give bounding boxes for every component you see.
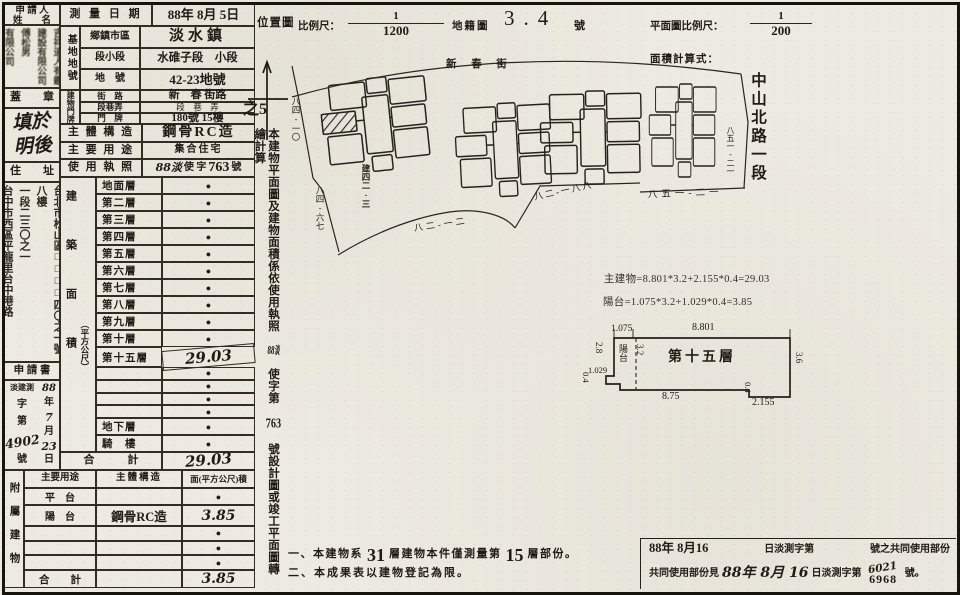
app-number-handwritten: 4902 — [4, 432, 40, 450]
annex-structure — [96, 526, 182, 541]
annex-area-balcony: 3.85 — [182, 505, 255, 526]
app-date-month: 7 — [45, 412, 53, 424]
plan-scale-denominator: 200 — [771, 24, 791, 39]
floor-area-value: ● — [162, 245, 255, 262]
app-char: 字 — [17, 400, 27, 411]
floor-area-value: ● — [162, 296, 255, 313]
dim-36: 3.6 — [792, 352, 803, 374]
cadastral-map-label: 地籍圖 — [452, 21, 498, 34]
floor-area-value: ● — [162, 194, 255, 211]
application-number-column: 淡建測 字 第 4902 號 — [5, 381, 39, 469]
usage-label: 主 要 用 途 — [60, 142, 142, 159]
building-cluster-3 — [540, 90, 642, 185]
app-date-year: 88 — [42, 384, 56, 395]
area-formula-label: 面積計算式： — [650, 54, 744, 67]
township-value: 淡水鎮 — [140, 26, 255, 48]
cu1-suffix: 號之共同使用部份 — [870, 545, 950, 556]
dim-1075: 1.075 — [611, 325, 643, 335]
address-handwritten: 台北市松山區□□□□四〇之一號八樓 一段二三〇之一 台中市西區平龍里台中港路 — [4, 185, 60, 359]
floor-area-value: ● — [162, 393, 255, 406]
door-number-value: 180號 15樓 — [140, 113, 255, 124]
parcel-label-851-21-right: 八五一-二一 — [722, 126, 734, 180]
annex-area: ● — [182, 555, 255, 570]
note1-measured-floor: 15 — [506, 546, 524, 565]
note1-suffix: 層部份。 — [528, 549, 578, 561]
app-char: 號 — [17, 455, 27, 466]
floor-area-value: ● — [162, 228, 255, 245]
address-label: 住 址 — [4, 162, 60, 182]
floor-label — [96, 393, 162, 406]
floor-label: 第六層 — [96, 262, 162, 279]
annex-side-cell: 附屬建物 — [4, 470, 24, 588]
floor-label: 第八層 — [96, 296, 162, 313]
parcel-boundaries — [292, 61, 748, 255]
floor-label: 第五層 — [96, 245, 162, 262]
cu2-suffix: 號。 — [905, 569, 925, 580]
annex-total-label: 合 計 — [24, 570, 96, 588]
parcel-label-jian-42-3: 建四二-三 — [357, 164, 370, 224]
annex-total-structure — [96, 570, 182, 588]
floor-area-value: ● — [162, 313, 255, 330]
strip-text-mid: 使字第 — [267, 368, 279, 404]
structure-label: 主 體 構 造 — [60, 124, 142, 142]
dim-04-right: 0.4 — [742, 382, 752, 399]
township-label: 鄉鎮市區 — [80, 26, 140, 48]
building-cluster-4 — [649, 84, 716, 177]
scale-label: 比例尺： — [298, 21, 348, 34]
company-stamp-text: 吉祥道人有鑑 建設有限公司傅松男 有限公司 — [4, 28, 60, 86]
street-name-xinchun: 新 春 街 — [446, 59, 532, 73]
app-date-unit: 日 — [44, 455, 54, 466]
annex-structure — [96, 555, 182, 570]
dim-875: 8.75 — [662, 392, 694, 403]
lot-number-value: 42-23地號 — [140, 69, 255, 90]
cu2-doc-label: 日淡測字第 — [811, 569, 861, 580]
handwritten-note: 填於 明後 — [11, 110, 52, 160]
parcel-label-84-67: 八四-六七 — [311, 186, 324, 244]
main-building-formula: 主建物=8.801*3.2+2.155*0.4=29.03 — [604, 274, 856, 286]
strip-license-number: 763 — [266, 417, 281, 431]
dim-04-left: 0.4 — [580, 372, 590, 390]
street-name-zhongshan: 中山北路一段 — [735, 72, 765, 192]
floor-label: 第七層 — [96, 279, 162, 296]
app-date-unit: 年 — [44, 398, 54, 409]
certificate-note-vertical: 本建物平面圖及建物面積係依使用執照 88淡 使字第 763 號設計圖或竣工平面圖… — [257, 128, 280, 578]
building-area-side-label: 建築面積 — [64, 190, 76, 400]
building-area-table: 地面層● 第二層● 第三層● 第四層● 第五層● 第六層● 第七層● 第八層● … — [96, 177, 255, 452]
cu1-date: 88年 8月16 — [649, 542, 708, 555]
license-number: 763 — [208, 161, 229, 176]
floor-area-value: ● — [162, 279, 255, 296]
annex-use — [24, 541, 96, 556]
address-cell: 台北市松山區□□□□四〇之一號八樓 一段二三〇之一 台中市西區平龍里台中港路 — [4, 182, 60, 362]
annex-use-balcony: 陽 台 — [24, 505, 96, 526]
handwritten-note-cell: 填於 明後 — [4, 108, 60, 162]
applicant-stamp-cell: 吉祥道人有鑑 建設有限公司傅松男 有限公司 — [4, 25, 60, 88]
annex-structure — [96, 488, 182, 505]
annex-use — [24, 555, 96, 570]
application-number-cell: 淡建測 字 第 4902 號 88 年 7 月 23 日 — [4, 380, 60, 470]
building-area-unit-label: （平方公尺） — [80, 320, 89, 448]
building-cluster-2 — [454, 101, 554, 199]
application-date-column: 88 年 7 月 23 日 — [39, 381, 59, 469]
usage-value: 集合住宅 — [142, 142, 255, 159]
app-prefix: 淡建測 — [10, 384, 34, 392]
survey-result-form-scan: 申 請 人 姓 名 吉祥道人有鑑 建設有限公司傅松男 有限公司 蓋 章 填於 明… — [0, 0, 960, 595]
annex-side-label: 附屬建物 — [8, 482, 19, 576]
annex-use — [24, 526, 96, 541]
app-char: 第 — [17, 417, 27, 428]
area-total-label: 合 計 — [60, 452, 162, 470]
lot-number-label: 地 號 — [80, 69, 140, 90]
application-doc-label: 申 請 書 — [4, 362, 60, 380]
building-cluster-1 — [318, 73, 433, 177]
floor-label-15f: 第十五層 — [96, 347, 162, 367]
floor-label — [96, 380, 162, 393]
annex-area: ● — [182, 526, 255, 541]
cu1-doc-label: 日淡測字第 — [764, 545, 814, 556]
area-total-number: 29.03 — [184, 451, 232, 471]
note1-total-floors: 31 — [367, 546, 385, 565]
strip-license-year-hand: 88淡 — [267, 345, 280, 356]
annex-structure-balcony: 鋼骨RC造 — [96, 505, 182, 526]
parcel-label-84-10: 八四-一〇 — [287, 97, 300, 153]
building-area-side-cell: 建築面積 （平方公尺） — [60, 177, 96, 452]
app-date-day: 23 — [41, 441, 56, 453]
floor-label — [96, 405, 162, 418]
survey-date-label: 測 量 日 期 — [60, 4, 152, 26]
door-number-overflow: 之5 — [243, 102, 277, 124]
note-line-1: 一、本建物系 31 層建物本件僅測量第 15 層部份。 — [288, 545, 658, 565]
parcel-label-82-12: 八二-一二 — [413, 216, 472, 236]
floor-area-value: ● — [162, 405, 255, 418]
door-number-label: 門 牌 — [80, 113, 140, 124]
annex-header-usage: 主要用途 — [24, 470, 96, 488]
section-value: 水碓子段 小段 — [140, 48, 255, 69]
cu2-pre: 共同使用部份見 — [649, 569, 719, 580]
room-label-15th-floor: 第十五層 — [668, 351, 748, 368]
scale-fraction-1-1200: 1 1200 — [348, 11, 444, 39]
floor-area-value: ● — [162, 262, 255, 279]
floor-label: 第四層 — [96, 228, 162, 245]
annex-area: ● — [182, 541, 255, 556]
floor-area-value: ● — [162, 418, 255, 435]
door-plate-group-label: 建物門牌 — [66, 91, 74, 123]
license-label: 使 用 執 照 — [60, 159, 142, 177]
scale-denominator: 1200 — [383, 24, 409, 39]
annex-header-structure: 主體構造 — [96, 470, 182, 488]
note1-mid: 層建物本件僅測量第 — [389, 549, 502, 561]
annex-table: 平 台 ● 陽 台 鋼骨RC造 3.85 ● ● ● 合 計 3.85 — [24, 488, 255, 588]
note1-pre: 一、本建物系 — [288, 549, 363, 561]
floor-label-basement: 地下層 — [96, 418, 162, 435]
dim-1029: 1.029 — [588, 366, 618, 376]
cu2-date-hand: 88年 8月 16 — [722, 566, 808, 581]
annex-area: ● — [182, 488, 255, 505]
plan-scale-label: 平面圖比例尺： — [650, 21, 748, 34]
floor-area-value: ● — [162, 435, 255, 452]
floor-area-value: ● — [162, 177, 255, 194]
license-year-hand: 88淡 — [156, 162, 182, 174]
cadastral-map-number: 3.4 — [504, 7, 566, 35]
street-value: 新 春 街路 — [140, 90, 255, 102]
common-use-line-1: 88年 8月16 日淡測字第 號之共同使用部份 — [649, 542, 950, 556]
parcel-label-82-188: 八二-一八八 — [533, 179, 600, 204]
floor-label-arcade: 騎 樓 — [96, 435, 162, 452]
annex-use: 平 台 — [24, 488, 96, 505]
strip-text-pre: 本建物平面圖及建物面積係依使用執照 — [267, 128, 279, 332]
dim-2155: 2.155 — [752, 398, 790, 409]
structure-value: 鋼骨RC造 — [142, 124, 255, 142]
site-lot-group-label: 基地地號 — [65, 34, 76, 82]
balcony-formula: 陽台=1.075*3.2+1.029*0.4=3.85 — [603, 297, 845, 309]
subject-unit-hatched — [321, 111, 357, 134]
dim-28: 2.8 — [592, 342, 603, 366]
annex-total-value: 3.85 — [182, 570, 255, 588]
floor-label — [96, 367, 162, 380]
parcel-label-851-21-bottom: 八五一-二一 — [648, 189, 724, 204]
floor-label: 第十層 — [96, 330, 162, 347]
survey-date-value: 88年 8月 5日 — [152, 4, 255, 26]
app-date-unit: 月 — [44, 427, 54, 438]
cu2-number-stack: 6021 6968 — [868, 563, 897, 586]
common-use-box: 88年 8月16 日淡測字第 號之共同使用部份 共同使用部份見 88年 8月 1… — [640, 538, 956, 589]
license-value: 88淡 使 字 763 號 — [142, 159, 255, 177]
plan-scale-fraction-1-200: 1 200 — [750, 11, 812, 39]
seal-label: 蓋 章 — [4, 88, 60, 108]
floor-area-value: ● — [162, 211, 255, 228]
annex-structure — [96, 541, 182, 556]
floor-label: 第二層 — [96, 194, 162, 211]
section-label: 段小段 — [80, 48, 140, 69]
lane-alley-label: 段巷弄 — [80, 102, 140, 113]
floor-area-value: ● — [162, 380, 255, 393]
common-use-line-2: 共同使用部份見 88年 8月 16 日淡測字第 6021 6968 號。 — [649, 563, 950, 586]
floor-label: 第三層 — [96, 211, 162, 228]
applicant-name-label: 申 請 人 姓 名 — [4, 4, 60, 25]
door-plate-group-cell: 建物門牌 — [60, 90, 80, 124]
dim-8801: 8.801 — [692, 323, 730, 334]
license-mid: 使 字 — [184, 163, 207, 174]
area-total-value: 29.03 — [162, 452, 255, 470]
dim-32: 3.2 — [633, 344, 644, 368]
site-lot-group-cell: 基地地號 — [60, 26, 80, 90]
annex-header-area: 面(平方公尺)積 — [182, 470, 255, 488]
floor-label: 第九層 — [96, 313, 162, 330]
location-map-label: 位置圖 — [257, 17, 295, 32]
street-label: 街 路 — [80, 90, 140, 102]
cadastral-map-number-unit: 號 — [574, 21, 590, 34]
note-line-2: 二、本成果表以建物登記為限。 — [288, 568, 548, 583]
floor-label: 地面層 — [96, 177, 162, 194]
license-suffix: 號 — [231, 163, 241, 174]
